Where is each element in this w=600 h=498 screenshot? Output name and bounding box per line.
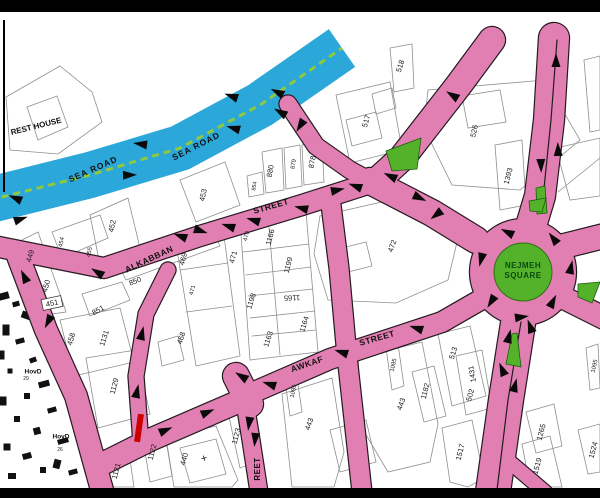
street-name-label: HovD bbox=[25, 368, 42, 375]
building-footprint bbox=[24, 393, 30, 399]
parcel-number: 1165 bbox=[284, 293, 300, 303]
map-edge-line bbox=[3, 20, 5, 192]
building-footprint bbox=[0, 351, 5, 360]
parcel-number: 29 bbox=[23, 376, 29, 382]
building-footprint bbox=[0, 397, 7, 406]
building-footprint bbox=[8, 473, 16, 479]
building-footprint bbox=[4, 444, 11, 451]
building-footprint bbox=[8, 369, 13, 374]
building-footprint bbox=[14, 416, 20, 422]
nejmeh-square-label: SQUARE bbox=[504, 271, 541, 280]
building-footprint bbox=[40, 467, 46, 473]
bottom-letterbox-bar bbox=[0, 488, 600, 498]
street-name-label: REET bbox=[253, 457, 262, 480]
top-letterbox-bar bbox=[0, 0, 600, 12]
nejmeh-square-label: NEJMEH bbox=[505, 261, 541, 270]
parcel-number: 26 bbox=[57, 447, 63, 453]
map-canvas: NEJMEHSQUARE4494504514524534544558508514… bbox=[0, 0, 600, 498]
street-map: NEJMEHSQUARE4494504514524534544558508514… bbox=[0, 0, 600, 498]
street-name-label: HovD bbox=[53, 433, 70, 440]
building-footprint bbox=[3, 325, 10, 336]
